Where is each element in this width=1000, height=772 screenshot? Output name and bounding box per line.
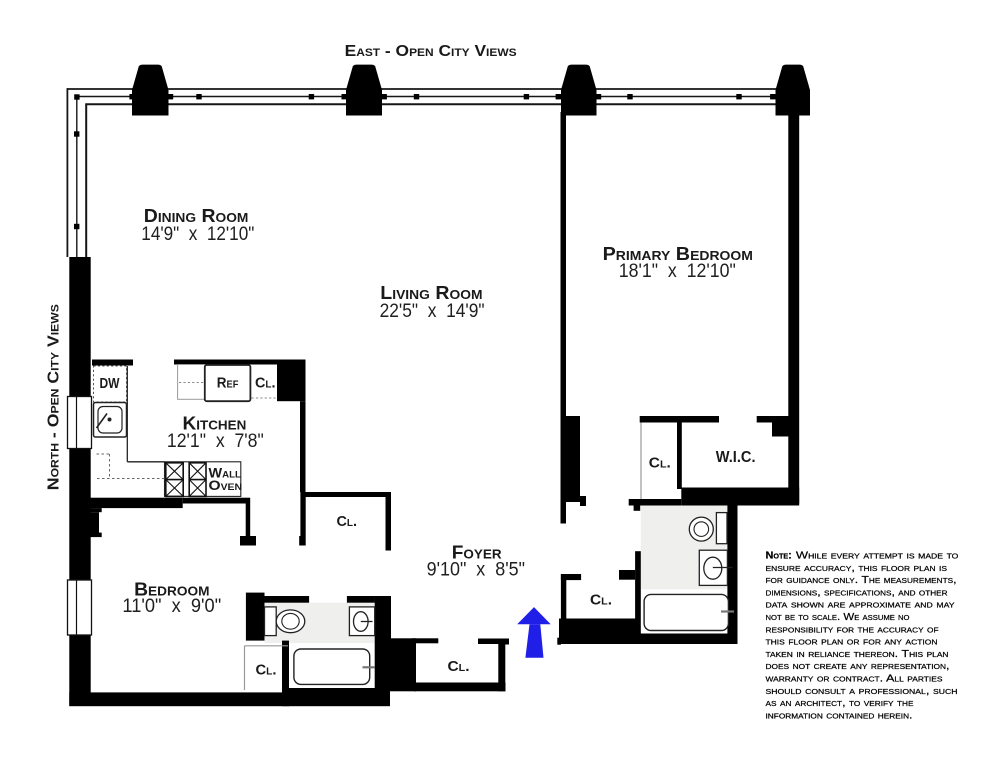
svg-text:does not create any representa: does not create any representation, (766, 660, 950, 672)
svg-text:Cl.: Cl. (256, 663, 277, 679)
svg-text:for guidance only. The measure: for guidance only. The measurements, (766, 574, 957, 586)
svg-text:W.I.C.: W.I.C. (716, 449, 756, 466)
svg-text:9'10" x 8'5": 9'10" x 8'5" (427, 560, 525, 581)
svg-text:East - Open City Views: East - Open City Views (345, 43, 517, 60)
svg-text:DW: DW (100, 376, 120, 392)
svg-text:12'1" x 7'8": 12'1" x 7'8" (167, 431, 264, 452)
svg-text:Dining Room: Dining Room (144, 205, 249, 226)
svg-text:should consult a professional,: should consult a professional, such (766, 685, 958, 697)
svg-text:While every attempt is made to: While every attempt is made to (796, 550, 959, 562)
svg-text:11'0" x 9'0": 11'0" x 9'0" (122, 596, 221, 617)
svg-text:dimensions, specifications, an: dimensions, specifications, and other (766, 586, 948, 598)
svg-text:Ref: Ref (217, 376, 239, 392)
svg-text:information contained herein.: information contained herein. (766, 709, 913, 721)
svg-text:14'9" x 12'10": 14'9" x 12'10" (141, 224, 254, 245)
svg-text:data shown are approximate and: data shown are approximate and may (766, 599, 955, 611)
svg-text:Oven: Oven (209, 478, 243, 493)
svg-text:22'5" x 14'9": 22'5" x 14'9" (380, 301, 485, 322)
svg-text:taken in reliance thereon. Thi: taken in reliance thereon. This plan (766, 648, 949, 660)
svg-text:as an architect, to verify the: as an architect, to verify the (766, 697, 914, 709)
svg-text:this floor plan or for any act: this floor plan or for any action (766, 636, 938, 648)
svg-text:Cl.: Cl. (337, 514, 358, 530)
svg-text:Cl.: Cl. (590, 593, 612, 609)
svg-text:Cl.: Cl. (649, 456, 671, 472)
svg-text:responsibility for the accurac: responsibility for the accuracy of (766, 623, 939, 635)
svg-text:Cl.: Cl. (255, 376, 276, 392)
svg-text:Living Room: Living Room (380, 282, 482, 303)
svg-text:ensure accuracy, this floor pl: ensure accuracy, this floor plan is (766, 562, 948, 574)
svg-text:18'1" x 12'10": 18'1" x 12'10" (619, 261, 736, 282)
svg-text:North - Open City Views: North - Open City Views (46, 304, 63, 490)
svg-text:not be to scale. We assume no: not be to scale. We assume no (766, 611, 911, 623)
svg-text:Cl.: Cl. (448, 659, 470, 675)
svg-text:Note:: Note: (766, 550, 792, 562)
svg-text:warranty or contract. All part: warranty or contract. All parties (766, 673, 943, 685)
